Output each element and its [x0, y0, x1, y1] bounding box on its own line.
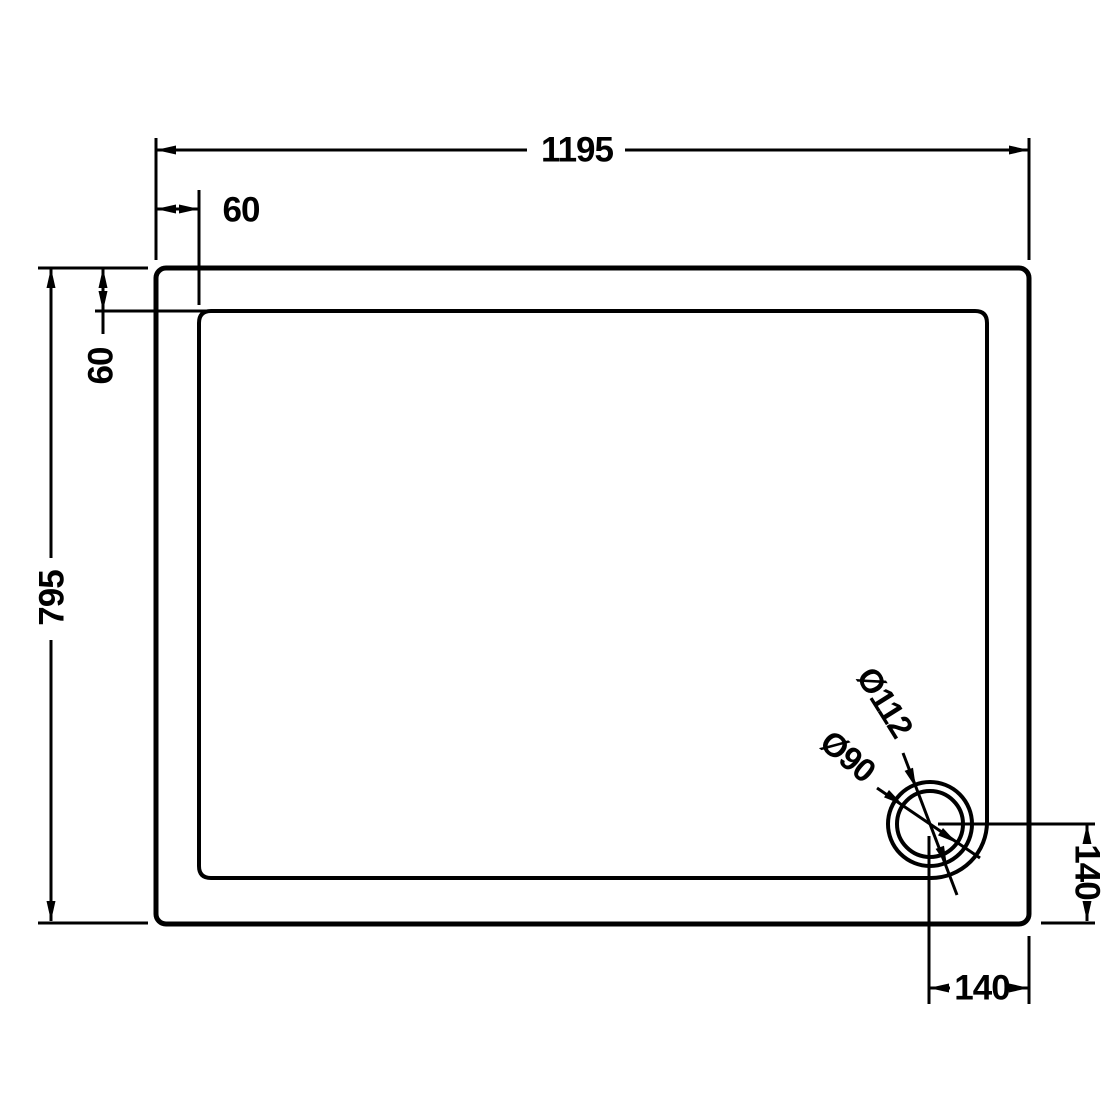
arrow-140-right-up [1083, 824, 1092, 844]
arrow-60-top-right [179, 205, 199, 214]
arrow-60-left-down [99, 291, 108, 311]
technical-drawing-canvas: 1195 60 795 60 Ø112 Ø90 140 140 [0, 0, 1101, 1101]
arrow-140-bottom-right [1009, 984, 1029, 993]
arrow-795-up [47, 268, 56, 288]
dim-label-overall-width: 1195 [541, 133, 613, 168]
arrow-1195-left [156, 146, 176, 155]
dim-label-left-edge-offset: 60 [84, 348, 119, 385]
arrow-140-bottom-left [929, 984, 949, 993]
arrow-60-left-up [99, 268, 108, 288]
dim-label-top-edge-offset: 60 [223, 193, 260, 228]
arrow-140-right-down [1083, 901, 1092, 921]
arrow-795-down [47, 901, 56, 921]
arrow-1195-right [1009, 146, 1029, 155]
dim-label-overall-depth: 795 [35, 570, 70, 625]
tray-inner-outline [199, 311, 987, 878]
dim-label-waste-offset-right: 140 [1070, 844, 1101, 899]
arrow-60-top-left [156, 205, 176, 214]
dim-label-waste-offset-bottom: 140 [954, 971, 1009, 1006]
